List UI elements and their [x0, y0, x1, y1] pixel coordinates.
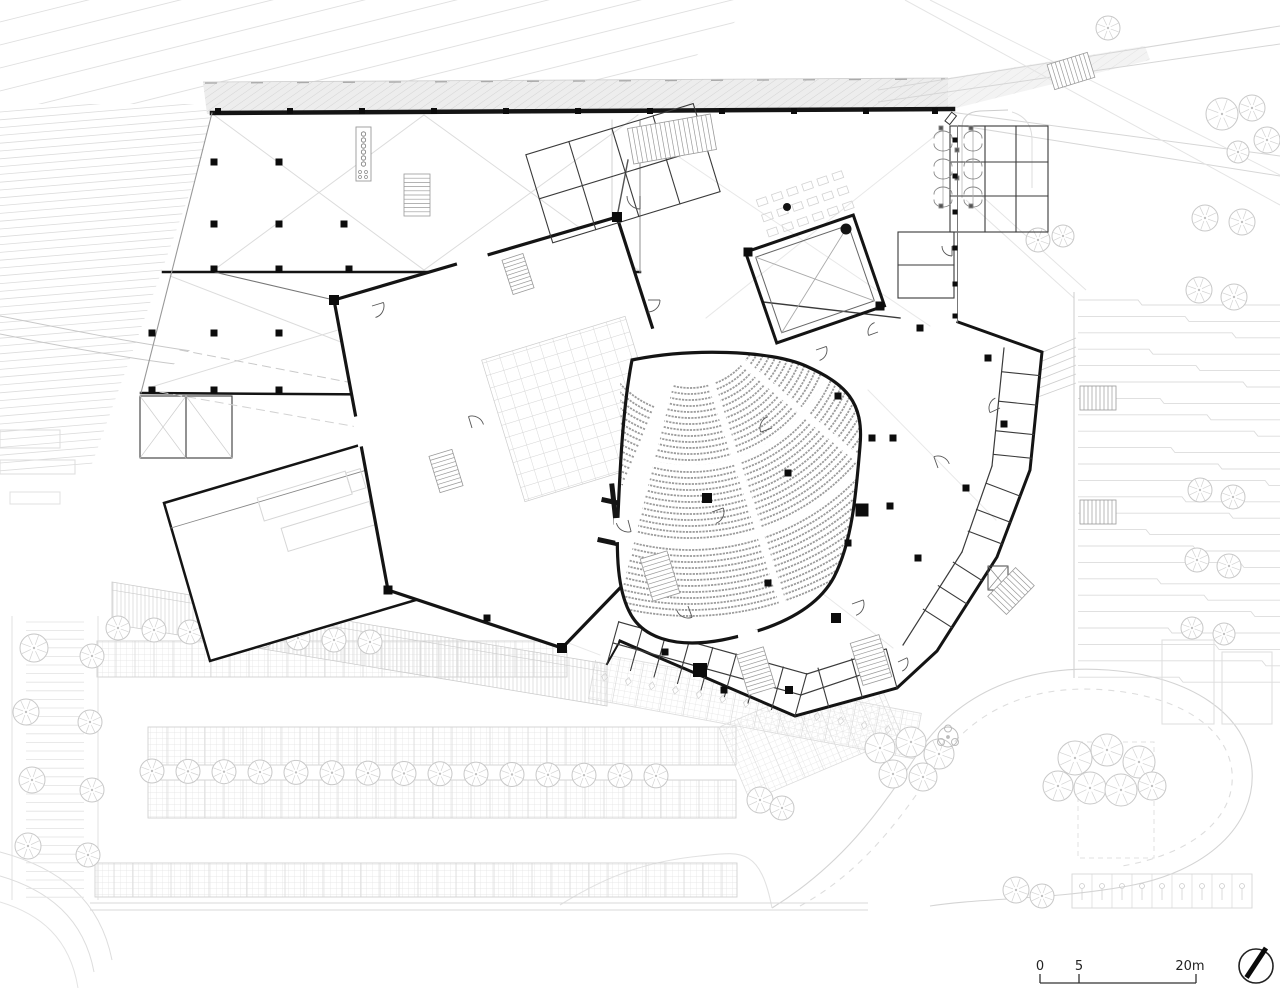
scale-label-zero: 0	[1036, 959, 1044, 974]
north-arrow-icon	[1239, 948, 1273, 983]
round-column	[783, 203, 791, 211]
scale-label-five: 5	[1075, 959, 1083, 974]
floor-plan-page: 0 5 20m	[0, 0, 1280, 988]
scale-bar: 0 5 20m	[1036, 959, 1205, 983]
fixture-strip	[356, 127, 371, 181]
scale-label-max: 20m	[1175, 959, 1204, 974]
footpath-lines	[90, 903, 868, 910]
floor-plan-drawing: 0 5 20m	[0, 0, 1280, 988]
round-column	[841, 224, 852, 235]
terrace-steps-east	[1074, 292, 1280, 682]
